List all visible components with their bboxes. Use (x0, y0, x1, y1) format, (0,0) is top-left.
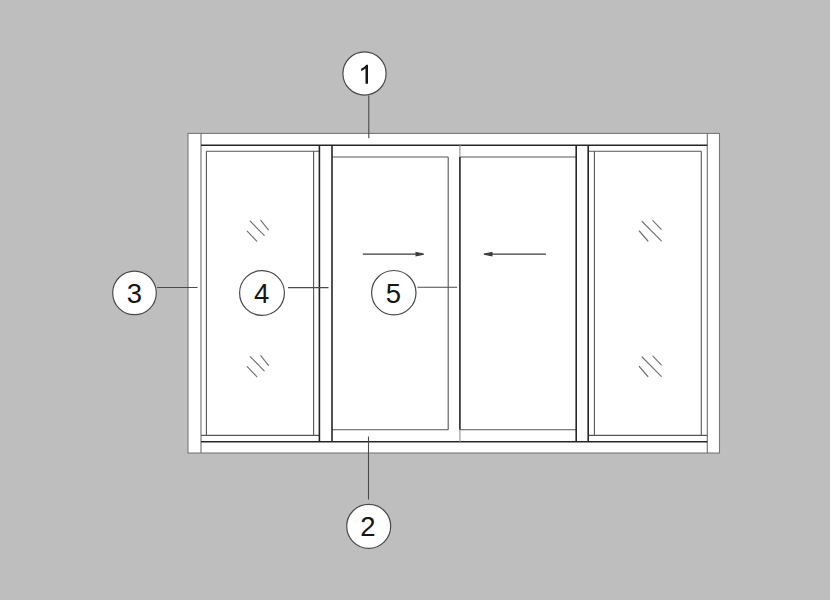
svg-text:2: 2 (360, 511, 375, 542)
svg-text:4: 4 (254, 278, 269, 309)
svg-text:3: 3 (127, 278, 142, 309)
svg-text:5: 5 (386, 278, 401, 309)
